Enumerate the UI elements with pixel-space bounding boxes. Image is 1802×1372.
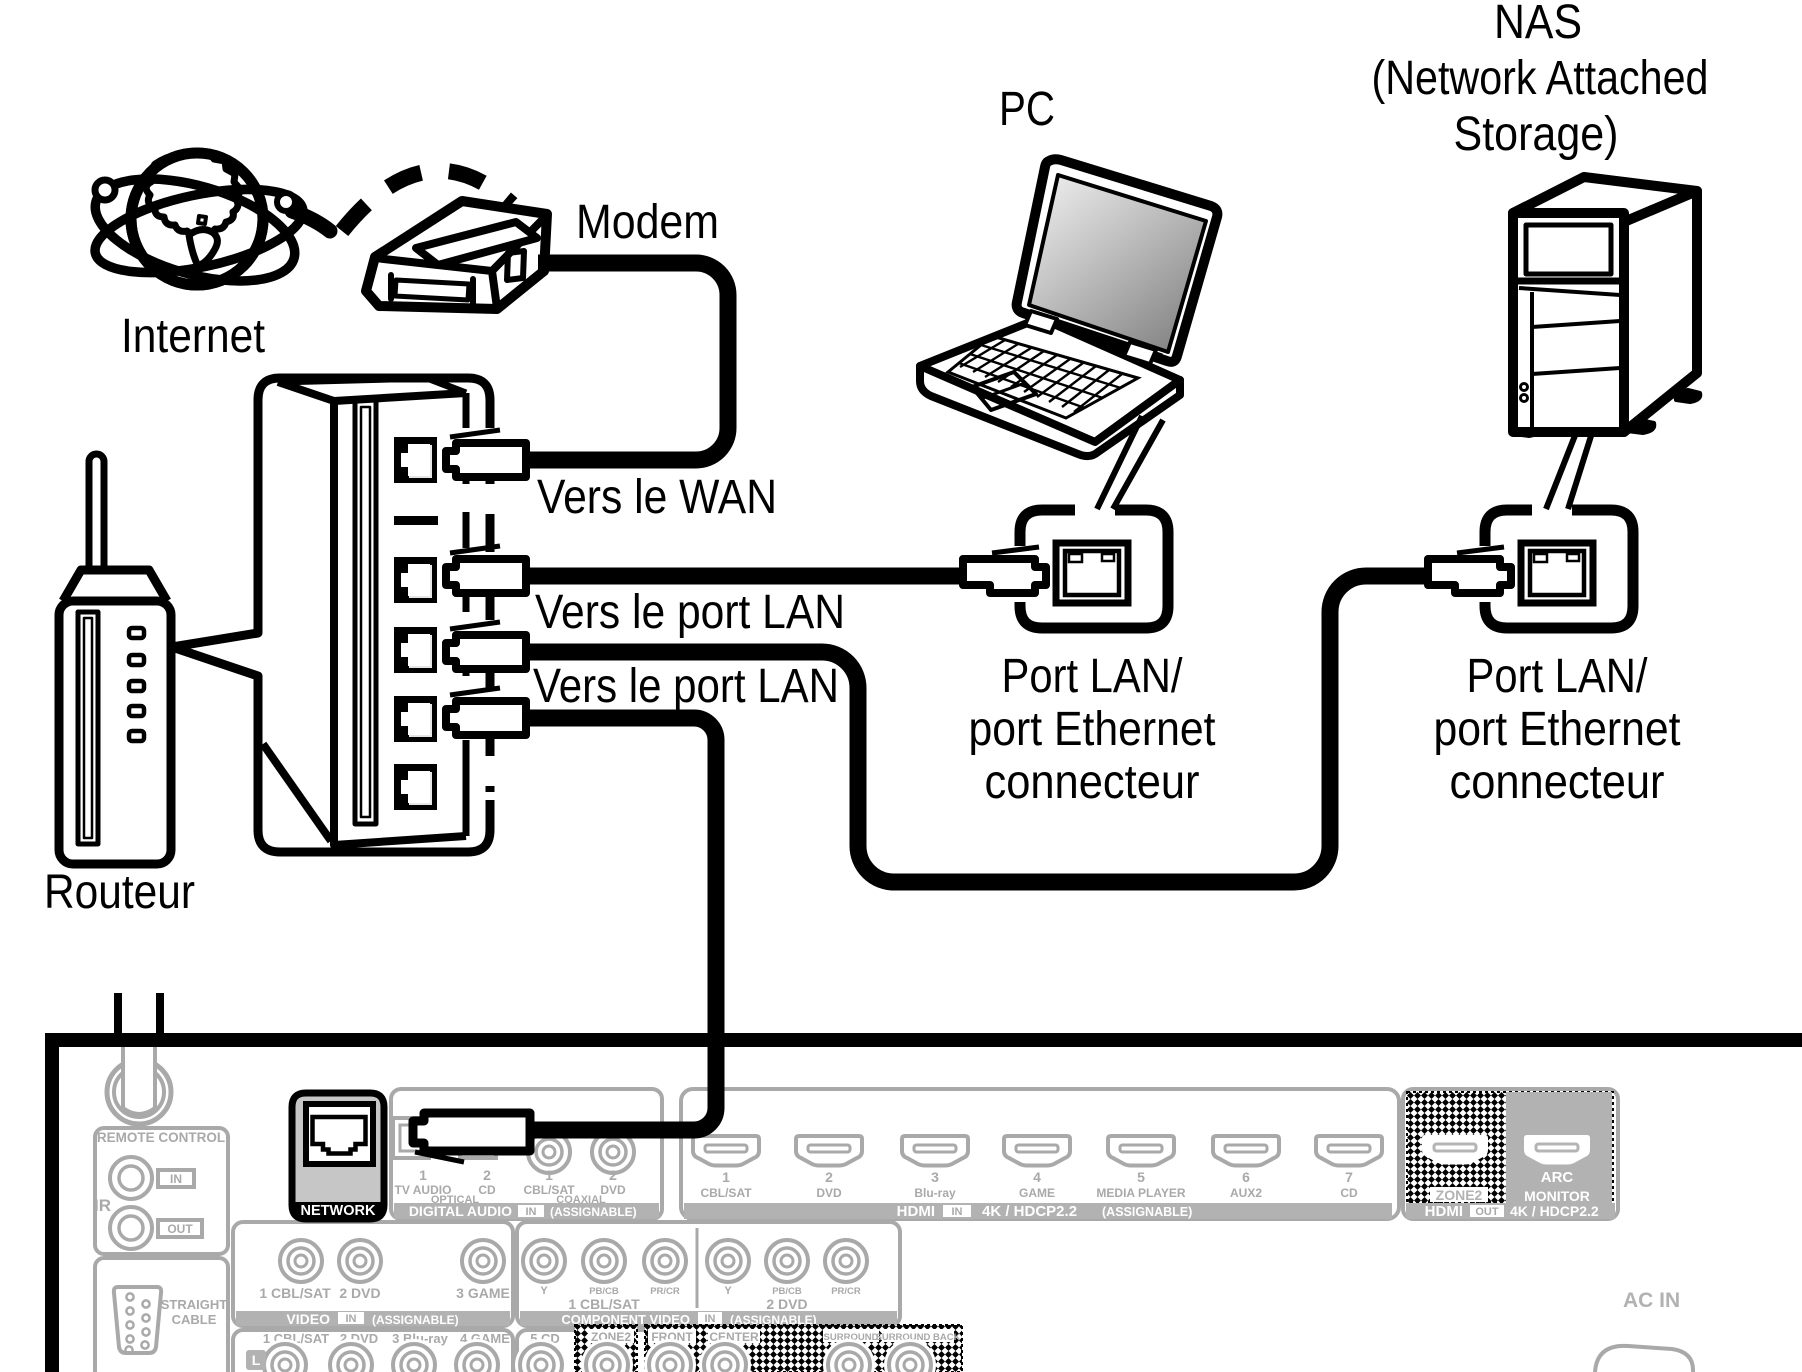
svg-text:Routeur: Routeur (44, 866, 195, 919)
svg-text:MEDIA PLAYER: MEDIA PLAYER (1096, 1186, 1185, 1200)
svg-text:4K / HDCP2.2: 4K / HDCP2.2 (1510, 1203, 1599, 1219)
svg-text:4: 4 (1033, 1169, 1041, 1185)
svg-text:2 DVD: 2 DVD (766, 1296, 807, 1312)
svg-text:1: 1 (419, 1167, 427, 1183)
svg-text:2: 2 (609, 1167, 617, 1183)
svg-text:PR/CR: PR/CR (650, 1286, 680, 1297)
svg-text:IN: IN (170, 1172, 182, 1186)
svg-text:4K / HDCP2.2: 4K / HDCP2.2 (982, 1203, 1077, 1220)
svg-text:Port LAN/: Port LAN/ (1467, 650, 1649, 703)
svg-text:IN: IN (952, 1206, 963, 1218)
svg-text:connecteur: connecteur (1450, 756, 1665, 809)
svg-text:IN: IN (705, 1313, 716, 1325)
svg-text:(Network Attached: (Network Attached (1372, 52, 1709, 105)
svg-text:Vers le port LAN: Vers le port LAN (535, 586, 845, 639)
svg-text:ZONE2: ZONE2 (1436, 1187, 1483, 1203)
svg-text:L: L (252, 1352, 261, 1368)
svg-text:(ASSIGNABLE): (ASSIGNABLE) (550, 1205, 637, 1219)
svg-text:1: 1 (722, 1169, 730, 1185)
svg-text:DIGITAL AUDIO: DIGITAL AUDIO (409, 1203, 512, 1219)
svg-text:CD: CD (1340, 1186, 1358, 1200)
svg-text:1 CBL/SAT: 1 CBL/SAT (259, 1285, 331, 1301)
svg-text:Y: Y (724, 1285, 732, 1297)
svg-text:port Ethernet: port Ethernet (969, 703, 1216, 756)
svg-text:Port LAN/: Port LAN/ (1002, 650, 1184, 703)
svg-text:Modem: Modem (576, 196, 719, 249)
svg-text:port Ethernet: port Ethernet (1434, 703, 1681, 756)
svg-text:2 DVD: 2 DVD (339, 1285, 380, 1301)
svg-text:PR/CR: PR/CR (831, 1286, 861, 1297)
svg-text:Vers le WAN: Vers le WAN (537, 471, 777, 524)
svg-text:Storage): Storage) (1454, 108, 1619, 161)
svg-text:CABLE: CABLE (172, 1312, 217, 1327)
svg-text:IR: IR (94, 1196, 111, 1215)
svg-text:OUT: OUT (1475, 1206, 1499, 1218)
svg-text:5: 5 (1137, 1169, 1145, 1185)
svg-text:(ASSIGNABLE): (ASSIGNABLE) (372, 1313, 459, 1327)
svg-text:OUT: OUT (167, 1222, 193, 1236)
svg-text:NAS: NAS (1494, 0, 1582, 49)
svg-text:CBL/SAT: CBL/SAT (700, 1186, 752, 1200)
svg-text:connecteur: connecteur (985, 756, 1200, 809)
svg-text:Internet: Internet (121, 310, 265, 363)
svg-text:STRAIGHT: STRAIGHT (161, 1297, 228, 1312)
svg-text:3 GAME: 3 GAME (456, 1285, 510, 1301)
svg-text:3: 3 (931, 1169, 939, 1185)
svg-text:Vers le port LAN: Vers le port LAN (533, 660, 839, 713)
svg-text:MONITOR: MONITOR (1524, 1188, 1590, 1204)
svg-text:2: 2 (825, 1169, 833, 1185)
svg-text:7: 7 (1345, 1169, 1353, 1185)
svg-text:NETWORK: NETWORK (301, 1203, 376, 1219)
svg-text:Blu-ray: Blu-ray (914, 1186, 956, 1200)
svg-text:GAME: GAME (1019, 1186, 1055, 1200)
svg-text:6: 6 (1242, 1169, 1250, 1185)
svg-text:1 CBL/SAT: 1 CBL/SAT (568, 1296, 640, 1312)
svg-text:HDMI: HDMI (1425, 1203, 1463, 1220)
svg-text:ARC: ARC (1541, 1169, 1574, 1186)
svg-text:IN: IN (346, 1313, 357, 1325)
svg-text:PC: PC (999, 83, 1055, 136)
svg-text:IN: IN (526, 1206, 537, 1218)
svg-text:REMOTE CONTROL: REMOTE CONTROL (97, 1130, 225, 1145)
svg-text:Y: Y (540, 1285, 548, 1297)
svg-text:HDMI: HDMI (897, 1203, 935, 1220)
svg-text:AUX2: AUX2 (1230, 1186, 1262, 1200)
svg-text:AC IN: AC IN (1623, 1289, 1680, 1312)
svg-text:VIDEO: VIDEO (286, 1311, 330, 1327)
svg-text:(ASSIGNABLE): (ASSIGNABLE) (1102, 1205, 1192, 1219)
svg-text:CD: CD (478, 1183, 496, 1197)
svg-text:2: 2 (483, 1167, 491, 1183)
svg-text:1: 1 (545, 1167, 553, 1183)
svg-text:DVD: DVD (816, 1186, 842, 1200)
